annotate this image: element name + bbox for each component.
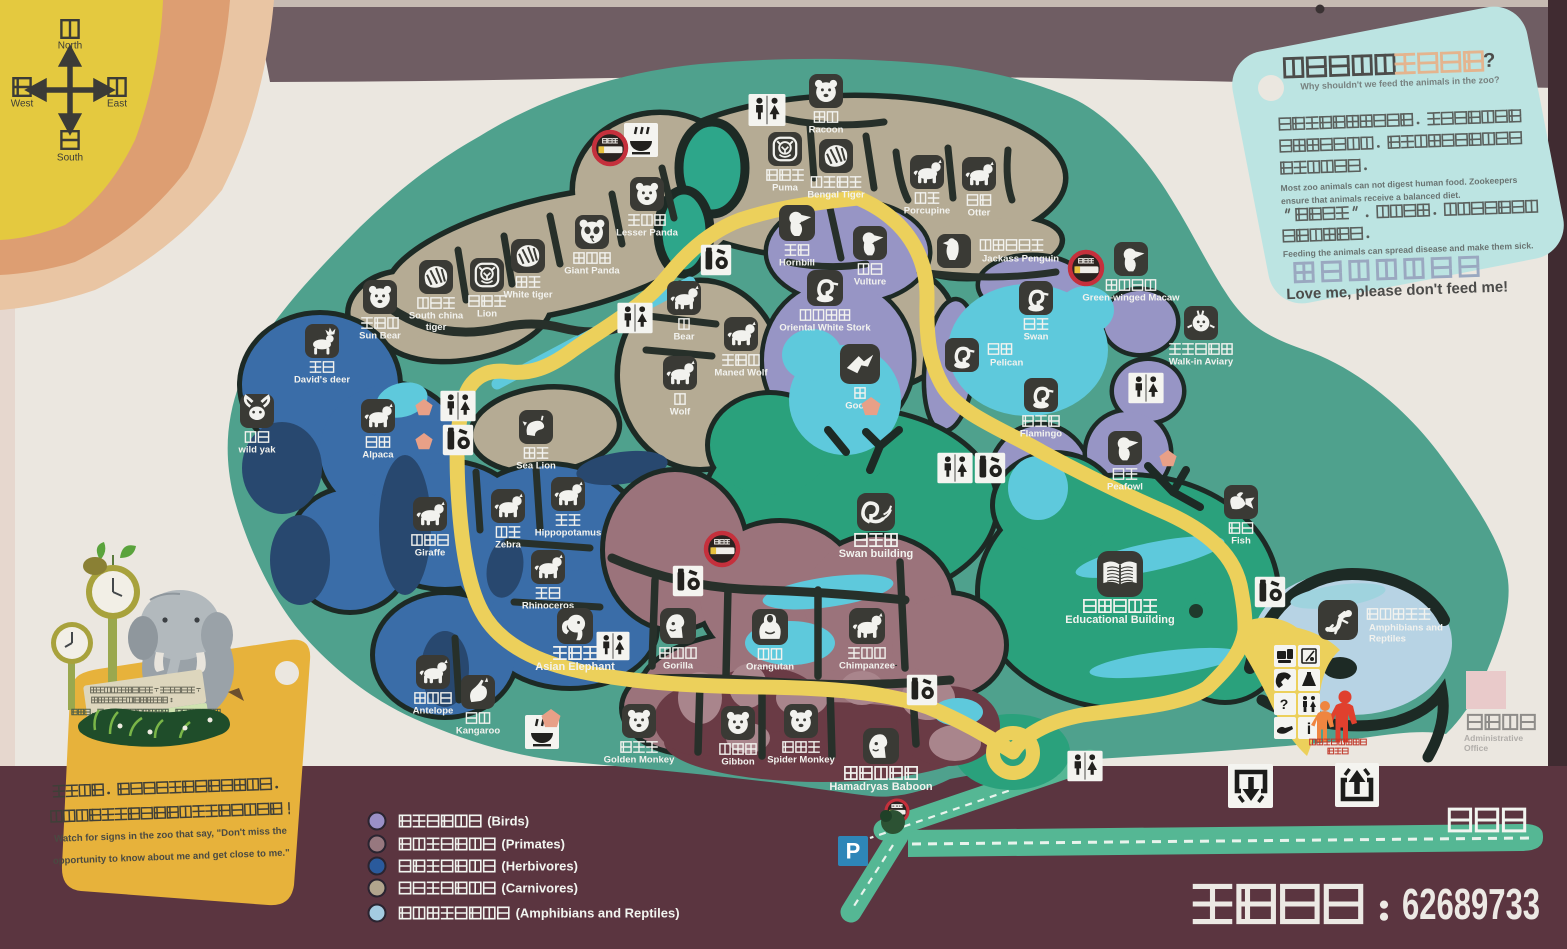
svg-text:Maned Wolf: Maned Wolf <box>714 368 768 379</box>
svg-text:62689733: 62689733 <box>1402 880 1540 929</box>
svg-text:(Carnivores): (Carnivores) <box>501 881 578 896</box>
svg-text:P: P <box>846 839 861 864</box>
svg-text:Asian Elephant: Asian Elephant <box>535 661 615 673</box>
svg-text:Otter: Otter <box>968 208 991 219</box>
svg-text:Pelican: Pelican <box>990 357 1023 368</box>
svg-text:wild yak: wild yak <box>238 445 277 456</box>
svg-text:i: i <box>1307 721 1311 738</box>
svg-text:Vulture: Vulture <box>854 277 886 288</box>
svg-text:(Primates): (Primates) <box>501 837 565 852</box>
svg-text:Orangutan: Orangutan <box>746 662 794 673</box>
svg-text:South: South <box>57 153 83 164</box>
svg-text:Alpaca: Alpaca <box>362 450 394 461</box>
svg-text:South china: South china <box>409 311 464 322</box>
svg-text:(Amphibians and Reptiles): (Amphibians and Reptiles) <box>516 906 680 921</box>
svg-text:White tiger: White tiger <box>503 290 552 301</box>
svg-text:(Herbivores): (Herbivores) <box>501 859 578 874</box>
svg-text:Hamadryas Baboon: Hamadryas Baboon <box>829 781 933 793</box>
svg-text:Educational Building: Educational Building <box>1065 614 1174 626</box>
svg-text:Swan: Swan <box>1024 332 1049 343</box>
svg-text:(Birds): (Birds) <box>487 814 529 829</box>
svg-text:tiger: tiger <box>426 322 447 333</box>
svg-text:Porcupine: Porcupine <box>904 206 950 217</box>
svg-text:Jackass Penguin: Jackass Penguin <box>982 253 1059 264</box>
svg-text:Antelope: Antelope <box>413 706 454 717</box>
svg-text:Gorilla: Gorilla <box>663 661 694 672</box>
svg-text:North: North <box>58 41 82 52</box>
svg-text:David's deer: David's deer <box>294 375 350 386</box>
svg-text:Sea Lion: Sea Lion <box>516 461 556 472</box>
svg-text:Zebra: Zebra <box>495 540 522 551</box>
svg-text:Administrative: Administrative <box>1464 733 1523 743</box>
svg-text:Giant Panda: Giant Panda <box>564 266 620 277</box>
svg-text:Kangaroo: Kangaroo <box>456 726 501 737</box>
svg-text:Hornbill: Hornbill <box>779 258 815 269</box>
svg-text:Golden Monkey: Golden Monkey <box>604 755 675 766</box>
svg-text:Wolf: Wolf <box>670 407 691 418</box>
svg-text:Hippopotamus: Hippopotamus <box>535 528 602 539</box>
svg-text:Oriental White Stork: Oriental White Stork <box>779 323 871 334</box>
svg-text:Amphibians and: Amphibians and <box>1369 622 1443 633</box>
svg-text:Sun Bear: Sun Bear <box>359 331 401 342</box>
svg-text:Giraffe: Giraffe <box>415 548 446 559</box>
svg-text:Walk-in Aviary: Walk-in Aviary <box>1169 357 1234 368</box>
svg-text:West: West <box>11 99 34 110</box>
svg-text:Racoon: Racoon <box>809 125 844 136</box>
svg-text:Bengal Tiger: Bengal Tiger <box>807 190 865 201</box>
svg-text:Green-winged Macaw: Green-winged Macaw <box>1082 293 1180 304</box>
svg-text:Chimpanzee: Chimpanzee <box>839 661 895 672</box>
svg-text:Lesser Panda: Lesser Panda <box>616 228 678 239</box>
svg-text:Reptiles: Reptiles <box>1369 633 1406 644</box>
svg-text:Office: Office <box>1464 743 1488 753</box>
svg-text:Spider Monkey: Spider Monkey <box>767 755 835 766</box>
svg-text:?: ? <box>1483 50 1496 72</box>
svg-text:?: ? <box>1280 696 1289 712</box>
svg-text:Gibbon: Gibbon <box>721 757 754 768</box>
svg-text:Puma: Puma <box>772 183 799 194</box>
svg-text:Swan building: Swan building <box>839 548 914 560</box>
svg-text:Fish: Fish <box>1231 536 1251 547</box>
svg-text:Flamingo: Flamingo <box>1020 429 1062 440</box>
svg-text:Bear: Bear <box>673 332 694 343</box>
svg-text:East: East <box>107 99 127 110</box>
svg-text:Peafowl: Peafowl <box>1107 482 1143 493</box>
svg-text:Lion: Lion <box>477 309 497 320</box>
